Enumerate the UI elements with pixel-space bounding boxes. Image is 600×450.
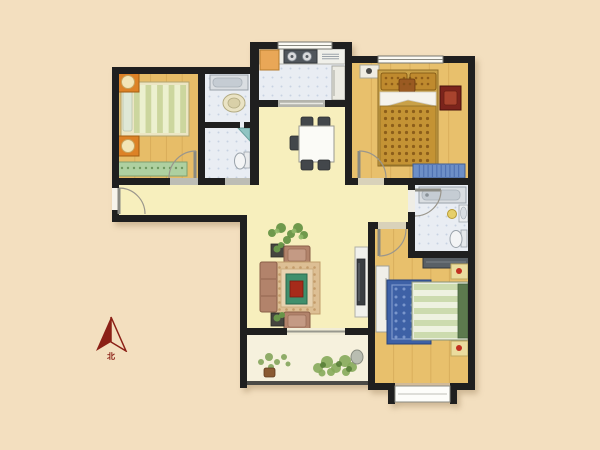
bed-3-blanket bbox=[414, 290, 458, 296]
rug-pattern bbox=[403, 328, 406, 331]
bed-2-pattern bbox=[384, 124, 387, 127]
rug-pattern bbox=[403, 288, 406, 291]
dining-chair bbox=[318, 160, 330, 170]
bed-3-blanket bbox=[414, 296, 458, 302]
bed-2-pattern bbox=[412, 124, 415, 127]
door-leaf bbox=[194, 151, 197, 178]
wall bbox=[352, 56, 378, 63]
wall bbox=[244, 122, 250, 128]
lamp-table-inner bbox=[444, 91, 457, 105]
plant-dark bbox=[336, 361, 342, 367]
tile-pattern bbox=[236, 141, 238, 143]
bed-2-pillow-pattern bbox=[415, 83, 418, 86]
tile-pattern bbox=[419, 243, 421, 245]
bed-1-blanket bbox=[151, 85, 157, 133]
plant-highlight bbox=[292, 229, 297, 234]
tile-pattern bbox=[218, 105, 220, 107]
bed-2-pattern bbox=[384, 145, 387, 148]
door-gap bbox=[378, 222, 406, 229]
bed-1-blanket bbox=[146, 85, 152, 133]
plant bbox=[279, 312, 285, 318]
plant bbox=[286, 362, 291, 367]
bed-2-pattern bbox=[412, 159, 415, 162]
tile-pattern bbox=[218, 159, 220, 161]
rug-pattern bbox=[278, 308, 281, 311]
lamp bbox=[122, 140, 135, 153]
tile-pattern bbox=[281, 68, 283, 70]
bench-pattern bbox=[151, 167, 153, 169]
tile-pattern bbox=[290, 68, 292, 70]
plant bbox=[327, 368, 335, 376]
bed-3-blanket bbox=[414, 320, 458, 326]
tile-pattern bbox=[446, 216, 448, 218]
bed-2-pattern bbox=[426, 145, 429, 148]
bed-2-pattern bbox=[426, 152, 429, 155]
rug-pattern bbox=[278, 280, 281, 283]
bed-1-blanket bbox=[140, 85, 146, 133]
nightstand-dot bbox=[456, 345, 462, 351]
tile-pattern bbox=[437, 225, 439, 227]
tile-pattern bbox=[326, 77, 328, 79]
floor-corridor bbox=[352, 185, 408, 222]
bed-2-pattern bbox=[398, 117, 401, 120]
tile-pattern bbox=[326, 68, 328, 70]
wall bbox=[325, 100, 345, 107]
bed-2-pattern bbox=[405, 124, 408, 127]
wall bbox=[112, 178, 170, 185]
bed-2-pattern bbox=[391, 152, 394, 155]
bed-2-pattern bbox=[398, 124, 401, 127]
bed-2-pattern bbox=[391, 131, 394, 134]
door-leaf bbox=[358, 151, 361, 178]
tile-pattern bbox=[263, 77, 265, 79]
bed-2-pattern bbox=[419, 117, 422, 120]
bed-2-pattern bbox=[426, 124, 429, 127]
tile-pattern bbox=[464, 225, 466, 227]
bed-2-pattern bbox=[419, 131, 422, 134]
bed-2-pattern bbox=[405, 152, 408, 155]
tile-pattern bbox=[317, 68, 319, 70]
bed-2-cushion bbox=[399, 79, 415, 92]
tile-pattern bbox=[428, 225, 430, 227]
bed-2-pattern bbox=[398, 159, 401, 162]
bench-pattern bbox=[121, 167, 123, 169]
door-threshold bbox=[225, 178, 250, 185]
tile-pattern bbox=[209, 141, 211, 143]
bed-2-pattern bbox=[412, 110, 415, 113]
bed-2-pattern bbox=[398, 131, 401, 134]
rug-pattern bbox=[395, 312, 398, 315]
tile-pattern bbox=[209, 132, 211, 134]
nightstand-dot bbox=[456, 268, 462, 274]
compass-label: 北 bbox=[90, 353, 132, 361]
bench-pattern bbox=[181, 167, 183, 169]
rug-pattern bbox=[278, 301, 281, 304]
door-gap bbox=[408, 190, 415, 212]
tile-pattern bbox=[272, 77, 274, 79]
bed-2-pattern bbox=[412, 138, 415, 141]
drain bbox=[425, 193, 429, 197]
tile-pattern bbox=[218, 96, 220, 98]
sofa bbox=[260, 262, 277, 312]
tile-pattern bbox=[299, 86, 301, 88]
bed-3-blanket bbox=[414, 302, 458, 308]
rug-pattern bbox=[313, 266, 316, 269]
bed-2-pattern bbox=[405, 117, 408, 120]
tile-pattern bbox=[209, 105, 211, 107]
tile-pattern bbox=[308, 95, 310, 97]
sink-basin bbox=[228, 98, 240, 108]
bed-2-pattern bbox=[405, 110, 408, 113]
tile-pattern bbox=[428, 216, 430, 218]
bed-2-pattern bbox=[398, 138, 401, 141]
tile-pattern bbox=[209, 168, 211, 170]
tile-pattern bbox=[446, 243, 448, 245]
bench-pattern bbox=[163, 167, 165, 169]
bed-2-pattern bbox=[419, 159, 422, 162]
tile-pattern bbox=[218, 132, 220, 134]
plant bbox=[281, 354, 287, 360]
tile-pattern bbox=[236, 114, 238, 116]
rug-pattern bbox=[299, 308, 302, 311]
wall bbox=[247, 328, 287, 335]
bed-1-blanket bbox=[174, 85, 180, 133]
tile-pattern bbox=[437, 207, 439, 209]
bed-3-end bbox=[458, 284, 468, 338]
bed-2-pattern bbox=[384, 159, 387, 162]
tile-pattern bbox=[308, 68, 310, 70]
tile-pattern bbox=[209, 150, 211, 152]
burner-center bbox=[291, 55, 294, 58]
bed-2-pillow-pattern bbox=[409, 77, 412, 80]
bed-2-pattern bbox=[412, 117, 415, 120]
plant-dark bbox=[320, 362, 326, 368]
bed-2-pillow-pattern bbox=[391, 77, 394, 80]
bed-3-blanket bbox=[414, 284, 458, 290]
tile-pattern bbox=[437, 216, 439, 218]
rug-pattern bbox=[313, 294, 316, 297]
rug-pattern bbox=[403, 304, 406, 307]
bed-2-pattern bbox=[384, 117, 387, 120]
bed-2-pillow-pattern bbox=[427, 77, 430, 80]
bed-2-pillow-pattern bbox=[391, 83, 394, 86]
bed-2-pattern bbox=[426, 110, 429, 113]
armchair-cushion bbox=[288, 249, 306, 261]
burner-center bbox=[306, 55, 309, 58]
plant bbox=[283, 236, 291, 244]
wall bbox=[352, 178, 358, 185]
bed-2-pillow-pattern bbox=[403, 77, 406, 80]
tile-pattern bbox=[299, 77, 301, 79]
rug-pattern bbox=[313, 287, 316, 290]
tile-pattern bbox=[245, 141, 247, 143]
tile-pattern bbox=[218, 150, 220, 152]
tile-pattern bbox=[446, 234, 448, 236]
sink-bowl bbox=[461, 207, 467, 219]
plant-highlight bbox=[299, 235, 304, 240]
wall bbox=[408, 251, 468, 258]
floor-hall bbox=[119, 185, 252, 215]
wall bbox=[388, 383, 395, 404]
rug-pattern bbox=[403, 320, 406, 323]
bed-2-pillow-pattern bbox=[403, 83, 406, 86]
wall bbox=[250, 42, 259, 185]
tile-pattern bbox=[317, 77, 319, 79]
bed-2-pattern bbox=[384, 152, 387, 155]
plant bbox=[278, 242, 284, 248]
bench-pattern bbox=[127, 167, 129, 169]
tile-pattern bbox=[290, 77, 292, 79]
rug-pattern bbox=[292, 266, 295, 269]
tile-pattern bbox=[428, 207, 430, 209]
bed-2-pattern bbox=[391, 117, 394, 120]
bed-1-pillow bbox=[123, 87, 132, 131]
bed-2-pattern bbox=[419, 110, 422, 113]
dresser bbox=[413, 164, 465, 178]
bed-2-pattern bbox=[419, 152, 422, 155]
tile-pattern bbox=[209, 96, 211, 98]
wall bbox=[450, 383, 457, 404]
tile-pattern bbox=[455, 225, 457, 227]
tile-pattern bbox=[446, 225, 448, 227]
rug-pattern bbox=[395, 336, 398, 339]
bed-3-blanket bbox=[414, 326, 458, 332]
tile-pattern bbox=[236, 132, 238, 134]
bed-3-blanket bbox=[414, 332, 458, 338]
tile-pattern bbox=[299, 95, 301, 97]
tile-pattern bbox=[317, 86, 319, 88]
tile-pattern bbox=[308, 86, 310, 88]
lamp bbox=[122, 76, 135, 89]
bed-2-pattern bbox=[391, 110, 394, 113]
tile-pattern bbox=[317, 95, 319, 97]
tile-pattern bbox=[218, 114, 220, 116]
bench-pattern bbox=[157, 167, 159, 169]
bed-2-pillow-pattern bbox=[397, 83, 400, 86]
bed-2-pattern bbox=[412, 152, 415, 155]
bed-2-pattern bbox=[426, 159, 429, 162]
bed-2-pattern bbox=[391, 138, 394, 141]
tile-pattern bbox=[437, 243, 439, 245]
tile-pattern bbox=[236, 150, 238, 152]
bed-2-pillow-pattern bbox=[415, 77, 418, 80]
tile-pattern bbox=[419, 234, 421, 236]
bed-2-pattern bbox=[419, 124, 422, 127]
tile-pattern bbox=[455, 207, 457, 209]
tile-pattern bbox=[272, 86, 274, 88]
tile-pattern bbox=[428, 234, 430, 236]
bathtub-inner bbox=[213, 78, 242, 87]
bed-2-pattern bbox=[426, 138, 429, 141]
toilet-bowl bbox=[450, 231, 462, 248]
plant-highlight bbox=[275, 229, 280, 234]
bed-2-pattern bbox=[398, 110, 401, 113]
plant bbox=[258, 359, 264, 365]
bed-1-blanket bbox=[180, 85, 186, 133]
door-leaf bbox=[118, 188, 121, 214]
bed-1-blanket bbox=[157, 85, 163, 133]
tile-pattern bbox=[245, 114, 247, 116]
bed-2-pattern bbox=[419, 138, 422, 141]
bed-2-pillow-pattern bbox=[409, 83, 412, 86]
vase bbox=[351, 350, 363, 364]
bed-2-pattern bbox=[398, 145, 401, 148]
tile-pattern bbox=[326, 86, 328, 88]
wall bbox=[240, 215, 247, 388]
shelf-knob bbox=[366, 68, 372, 74]
tile-pattern bbox=[281, 77, 283, 79]
wall bbox=[112, 67, 119, 188]
bench-pattern bbox=[139, 167, 141, 169]
rug-pattern bbox=[278, 266, 281, 269]
bench-pattern bbox=[145, 167, 147, 169]
basin bbox=[448, 210, 457, 219]
bed-2-pillow-pattern bbox=[385, 83, 388, 86]
toilet-bowl bbox=[235, 153, 246, 169]
door-threshold bbox=[170, 178, 198, 185]
tile-pattern bbox=[227, 114, 229, 116]
floorplan-image: 北 bbox=[0, 0, 600, 450]
tile-pattern bbox=[281, 95, 283, 97]
bed-2-pattern bbox=[391, 145, 394, 148]
tile-pattern bbox=[308, 77, 310, 79]
plant bbox=[265, 353, 273, 361]
wall bbox=[408, 178, 415, 190]
wall bbox=[205, 122, 240, 128]
tile-pattern bbox=[218, 141, 220, 143]
rug-pattern bbox=[313, 273, 316, 276]
wall bbox=[345, 42, 352, 185]
rug-pattern bbox=[292, 308, 295, 311]
bed-2-pattern bbox=[384, 138, 387, 141]
rug-pattern bbox=[395, 304, 398, 307]
bed-1-blanket bbox=[163, 85, 169, 133]
tile-pattern bbox=[209, 159, 211, 161]
rug-pattern bbox=[395, 328, 398, 331]
tile-pattern bbox=[227, 141, 229, 143]
tv bbox=[357, 259, 365, 305]
wall bbox=[406, 222, 415, 229]
tile-pattern bbox=[227, 132, 229, 134]
tile-pattern bbox=[446, 207, 448, 209]
tile-pattern bbox=[209, 114, 211, 116]
wall bbox=[368, 222, 375, 390]
bed-2-pattern bbox=[419, 145, 422, 148]
armchair-cushion bbox=[288, 315, 306, 327]
rug-pattern bbox=[395, 288, 398, 291]
kitchen-cabinet bbox=[260, 50, 279, 70]
compass: 北 bbox=[90, 314, 132, 361]
tile-pattern bbox=[263, 86, 265, 88]
bed-2-pattern bbox=[426, 131, 429, 134]
plant-dark bbox=[346, 366, 352, 372]
wall bbox=[468, 56, 475, 390]
bed-2-pillow-pattern bbox=[397, 77, 400, 80]
tile-pattern bbox=[245, 150, 247, 152]
tile-pattern bbox=[419, 225, 421, 227]
wall bbox=[112, 67, 257, 74]
bench-pattern bbox=[175, 167, 177, 169]
bed-2-pattern bbox=[412, 131, 415, 134]
bed-2-pattern bbox=[405, 159, 408, 162]
balcony-railing bbox=[247, 381, 368, 385]
bed-2-pillow-pattern bbox=[421, 77, 424, 80]
rug-pattern bbox=[403, 312, 406, 315]
bed-2-pattern bbox=[405, 138, 408, 141]
door-gap bbox=[358, 178, 384, 185]
bed-2-pattern bbox=[426, 117, 429, 120]
bed-2-pattern bbox=[391, 159, 394, 162]
tile-pattern bbox=[245, 96, 247, 98]
plant bbox=[319, 370, 326, 377]
bed-2-pattern bbox=[398, 152, 401, 155]
bed-2-pattern bbox=[391, 124, 394, 127]
rug-pattern bbox=[403, 296, 406, 299]
rug-pattern bbox=[313, 280, 316, 283]
rug-pattern bbox=[285, 266, 288, 269]
tile-pattern bbox=[419, 207, 421, 209]
bed-2-pillow-pattern bbox=[427, 83, 430, 86]
tile-pattern bbox=[290, 86, 292, 88]
bed-2-pattern bbox=[384, 131, 387, 134]
tile-pattern bbox=[281, 86, 283, 88]
tile-pattern bbox=[326, 95, 328, 97]
bed-2-pattern bbox=[384, 110, 387, 113]
floor-plan bbox=[0, 0, 600, 450]
bed-3-blanket bbox=[414, 308, 458, 314]
rug-pattern bbox=[313, 308, 316, 311]
door-leaf bbox=[415, 189, 441, 192]
coffee-table-center bbox=[290, 281, 303, 297]
tile-pattern bbox=[437, 234, 439, 236]
wall bbox=[368, 222, 378, 229]
rug-pattern bbox=[278, 273, 281, 276]
tile-pattern bbox=[227, 168, 229, 170]
bed-2-pattern bbox=[405, 131, 408, 134]
plant-pot bbox=[264, 368, 275, 377]
north-arrow-icon bbox=[90, 314, 132, 352]
rug-pattern bbox=[395, 320, 398, 323]
rug-pattern bbox=[395, 296, 398, 299]
tile-pattern bbox=[428, 243, 430, 245]
rug-pattern bbox=[403, 336, 406, 339]
wall bbox=[384, 178, 475, 185]
dining-chair bbox=[301, 160, 313, 170]
tile-pattern bbox=[272, 95, 274, 97]
tile-pattern bbox=[227, 150, 229, 152]
door-leaf bbox=[378, 229, 381, 256]
bench-pattern bbox=[133, 167, 135, 169]
wall bbox=[205, 178, 225, 185]
rug-pattern bbox=[306, 266, 309, 269]
rug-pattern bbox=[313, 301, 316, 304]
bed-2-pillow-pattern bbox=[385, 77, 388, 80]
rug-pattern bbox=[306, 308, 309, 311]
tile-pattern bbox=[290, 95, 292, 97]
rug-pattern bbox=[299, 266, 302, 269]
wall bbox=[198, 67, 205, 185]
rug-pattern bbox=[278, 287, 281, 290]
bed-1-blanket bbox=[169, 85, 175, 133]
tile-pattern bbox=[299, 68, 301, 70]
plant bbox=[274, 359, 280, 365]
bed-2-pattern bbox=[405, 145, 408, 148]
bed-2-pattern bbox=[412, 145, 415, 148]
tile-pattern bbox=[218, 168, 220, 170]
bed-2-quilt bbox=[380, 106, 436, 165]
tile-pattern bbox=[263, 95, 265, 97]
tile-pattern bbox=[227, 159, 229, 161]
